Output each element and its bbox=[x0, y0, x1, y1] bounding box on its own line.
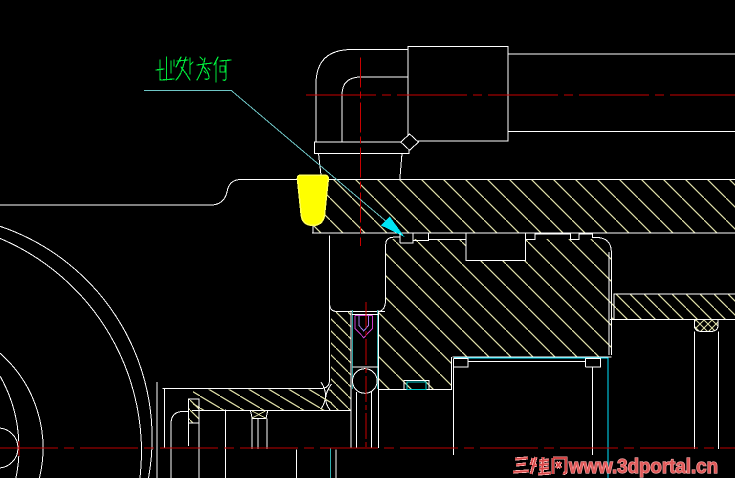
svg-text:www.3dportal.cn: www.3dportal.cn bbox=[568, 456, 718, 478]
